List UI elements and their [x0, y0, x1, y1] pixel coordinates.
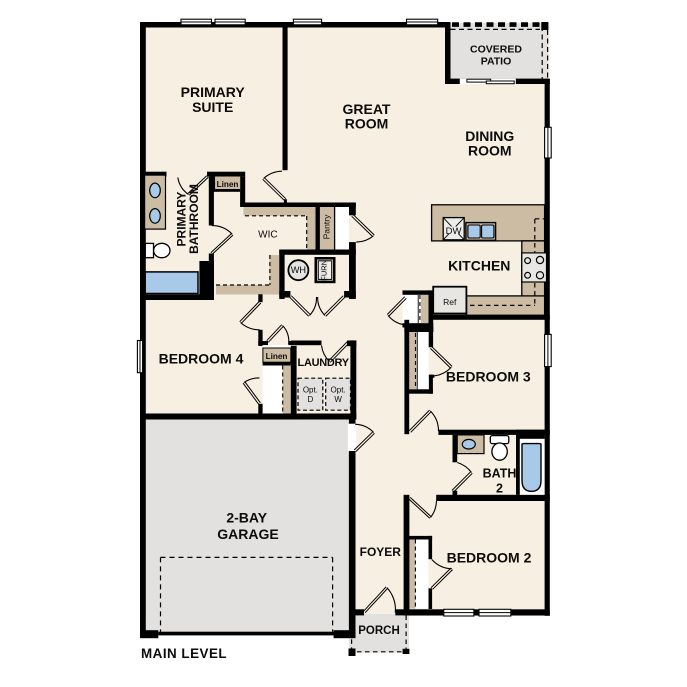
- svg-text:MAIN LEVEL: MAIN LEVEL: [141, 646, 227, 661]
- svg-text:D: D: [308, 395, 314, 404]
- svg-text:Ref: Ref: [443, 297, 457, 307]
- svg-text:SUITE: SUITE: [192, 99, 233, 115]
- svg-text:ROOM: ROOM: [468, 142, 512, 158]
- svg-text:DW: DW: [446, 226, 462, 237]
- svg-text:Pantry: Pantry: [321, 214, 331, 240]
- svg-text:Linen: Linen: [266, 352, 288, 361]
- svg-text:KITCHEN: KITCHEN: [448, 257, 510, 273]
- svg-text:2-BAY: 2-BAY: [226, 510, 267, 526]
- svg-text:PRIMARY: PRIMARY: [181, 84, 246, 100]
- svg-text:BEDROOM 4: BEDROOM 4: [159, 351, 244, 367]
- svg-text:BEDROOM 2: BEDROOM 2: [447, 550, 532, 566]
- svg-text:Opt.: Opt.: [303, 386, 318, 395]
- svg-text:Opt.: Opt.: [331, 386, 346, 395]
- svg-text:COVERED: COVERED: [470, 44, 522, 56]
- svg-text:LAUNDRY: LAUNDRY: [298, 357, 350, 369]
- svg-text:PORCH: PORCH: [358, 625, 400, 637]
- svg-text:ROOM: ROOM: [345, 115, 389, 131]
- svg-text:2: 2: [496, 482, 503, 496]
- svg-text:W: W: [334, 395, 342, 404]
- svg-text:WIC: WIC: [258, 229, 277, 240]
- svg-text:BATHROOM: BATHROOM: [187, 184, 201, 254]
- svg-text:Linen: Linen: [217, 180, 239, 189]
- svg-text:GARAGE: GARAGE: [217, 526, 278, 542]
- svg-text:FURN: FURN: [319, 260, 328, 281]
- svg-text:BEDROOM 3: BEDROOM 3: [446, 369, 531, 385]
- svg-text:FOYER: FOYER: [360, 545, 402, 559]
- svg-text:PATIO: PATIO: [481, 56, 512, 68]
- svg-text:WH: WH: [291, 265, 306, 275]
- svg-text:BATH: BATH: [483, 467, 517, 481]
